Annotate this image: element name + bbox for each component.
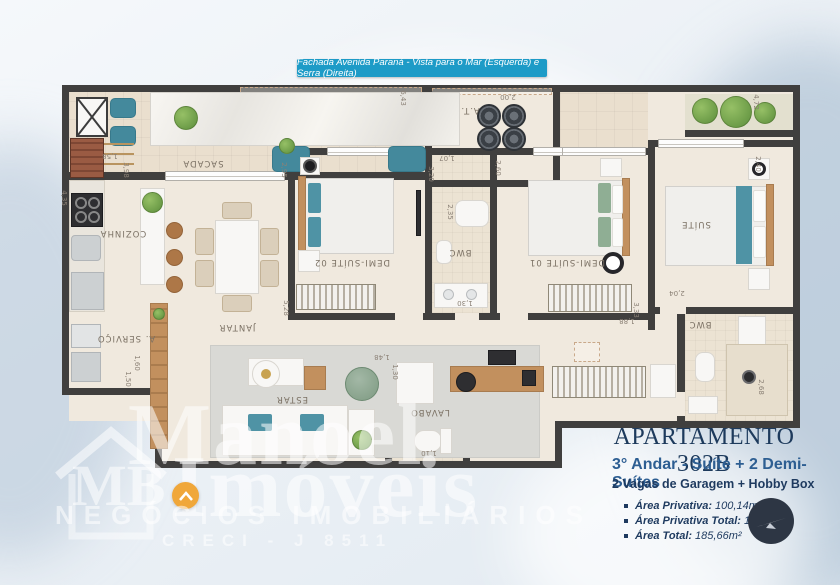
pillow — [308, 183, 321, 213]
room-label-demi-suite-02: DEMI-SUÍTE 02 — [314, 257, 390, 267]
dimension-label: 4,72 — [752, 94, 760, 110]
door-opening — [395, 313, 423, 320]
door-opening — [500, 313, 528, 320]
wall — [62, 85, 800, 92]
side-cabinet — [304, 366, 326, 390]
feature-label: Área Total: — [635, 530, 692, 542]
sofa-pillow — [248, 414, 272, 431]
facade-banner-text: Fachada Avenida Paraná - Vista para o Ma… — [297, 57, 547, 79]
dining-chair — [195, 228, 214, 255]
plant — [720, 96, 752, 128]
room-label-jantar: JANTAR — [219, 322, 256, 332]
decor — [303, 159, 317, 173]
feature-label: Área Privativa Total: — [635, 515, 741, 527]
dining-table — [215, 220, 259, 294]
fridge — [71, 272, 104, 310]
washer — [71, 352, 101, 382]
wall — [155, 461, 562, 468]
wall — [288, 148, 295, 320]
dimension-label: 1,30 — [457, 299, 473, 307]
pillow — [598, 183, 611, 213]
facade-banner: Fachada Avenida Paraná - Vista para o Ma… — [297, 59, 547, 77]
bed-runner — [736, 186, 752, 264]
grill — [70, 138, 104, 178]
plant — [279, 138, 295, 154]
door-opening — [677, 392, 685, 416]
bath-vanity — [688, 396, 718, 414]
room-label-at: A.T. — [460, 105, 479, 115]
room-label-bwc-suite: BWC — [689, 319, 712, 329]
door-opening — [455, 313, 479, 320]
dimension-label: 1,30 — [391, 364, 399, 380]
office-chair — [456, 372, 476, 392]
unit-subtitle-2: 2 Vagas de Garagem + Hobby Box — [612, 477, 815, 491]
cooktop — [71, 193, 103, 227]
bullet-icon — [624, 519, 628, 523]
orange-roof-icon — [172, 482, 199, 509]
dimension-label: 2,60 — [494, 160, 502, 176]
pillow — [753, 190, 766, 222]
toilet — [695, 352, 715, 382]
dining-chair — [222, 295, 252, 312]
room-label-servico: A. SERVIÇO — [97, 333, 155, 343]
wardrobe — [548, 284, 632, 312]
dimension-label: 6,43 — [399, 90, 407, 106]
plant — [692, 98, 718, 124]
balcony-right-floor — [560, 92, 648, 148]
dimension-label: 1,50 — [124, 371, 132, 387]
shower-bench — [738, 316, 766, 346]
skewer — [104, 143, 134, 145]
room-label-cozinha: COZINHA — [100, 228, 147, 238]
nightstand — [748, 268, 770, 290]
dimension-label: 1,60 — [133, 355, 141, 371]
dimension-label: 3,98 — [122, 162, 130, 178]
decor-tray — [261, 369, 271, 379]
feature-value: 185,66m² — [695, 530, 741, 542]
dimension-label: 1,88 — [619, 317, 635, 325]
dimension-label: 1,10 — [421, 449, 437, 457]
wall — [62, 388, 162, 395]
dimension-label: 2,95 — [280, 162, 288, 178]
stool — [166, 249, 183, 266]
closet-rack — [552, 366, 646, 398]
watermark-creci: CRECI - J 8511 — [162, 531, 393, 551]
door-swing — [574, 342, 600, 362]
pillow — [612, 218, 623, 247]
dimension-label: 1,07 — [439, 154, 455, 162]
dining-chair — [222, 202, 252, 219]
dimension-label: 2,40 — [754, 156, 762, 172]
wall-tv — [416, 190, 421, 236]
round-rug — [602, 252, 624, 274]
lavabo-vanity — [396, 362, 434, 404]
room-label-estar: ESTAR — [276, 394, 308, 404]
dimension-label: 2,00 — [500, 93, 516, 101]
dimension-label: 2,35 — [446, 204, 454, 220]
dining-chair — [260, 260, 279, 287]
elevator-shaft — [76, 97, 108, 137]
wall — [490, 155, 497, 320]
wall-planter — [685, 130, 793, 137]
wall — [648, 147, 655, 330]
wall-at — [553, 92, 560, 187]
ac-condenser — [477, 104, 501, 128]
sliding-door — [165, 171, 285, 181]
dining-chair — [195, 260, 214, 287]
mb-initials: MB — [72, 452, 165, 519]
wall — [555, 421, 562, 468]
kitchen-sink — [71, 235, 101, 261]
wall — [793, 85, 800, 428]
window — [562, 147, 646, 156]
room-label-bwc: BWC — [449, 247, 472, 257]
armchair — [345, 367, 379, 401]
burners-icon — [72, 194, 102, 226]
dimension-label: 2,04 — [669, 289, 685, 297]
window — [658, 139, 744, 148]
stool — [166, 276, 183, 293]
closet-cabinet — [650, 364, 676, 398]
stool — [166, 222, 183, 239]
feature-label: Área Privativa: — [635, 500, 712, 512]
toilet-tank — [440, 428, 452, 454]
pillow — [612, 185, 623, 214]
wardrobe — [296, 284, 376, 310]
door-opening — [660, 307, 686, 314]
dimension-label: 3,33 — [632, 302, 640, 318]
window — [327, 147, 391, 156]
floorplan-marketing-page: Fachada Avenida Paraná - Vista para o Ma… — [0, 0, 840, 585]
room-label-lavabo: LAVABO — [410, 407, 450, 417]
room-label-suite: SUÍTE — [681, 219, 711, 229]
bullet-icon — [624, 534, 628, 538]
headboard — [766, 184, 774, 266]
dimension-label: 1,48 — [374, 353, 390, 361]
headboard — [622, 178, 630, 256]
dimension-label: 2,68 — [757, 379, 765, 395]
pillow — [308, 217, 321, 247]
sofa — [222, 405, 348, 456]
sofa-pillow — [300, 414, 324, 431]
shower-drain — [742, 370, 756, 384]
printer — [522, 370, 536, 386]
nightstand — [600, 158, 622, 177]
wall — [425, 187, 432, 320]
north-arrow-icon — [748, 498, 794, 544]
pillow — [598, 217, 611, 247]
elevator-x-icon — [78, 99, 106, 135]
dimension-label: 4,35 — [60, 190, 68, 206]
plant — [142, 192, 163, 213]
headboard — [298, 176, 306, 254]
balcony-chair — [110, 98, 136, 118]
dimension-label: 1,58 — [102, 152, 118, 160]
dimension-label: 5,28 — [282, 300, 290, 316]
plant — [153, 308, 165, 320]
ac-condenser — [477, 127, 501, 151]
balcony-chair — [388, 146, 426, 172]
sink — [443, 289, 454, 300]
pillow — [753, 226, 766, 258]
wall — [62, 85, 69, 395]
plant — [174, 106, 198, 130]
bullet-icon — [624, 504, 628, 508]
ac-condenser — [502, 104, 526, 128]
room-label-sacada: SACADA — [182, 158, 223, 168]
plant — [352, 430, 372, 450]
pantry-shelf — [150, 303, 168, 449]
dining-chair — [260, 228, 279, 255]
bathtub — [455, 200, 489, 227]
room-label-demi-suite-01: DEMI-SUÍTE 01 — [529, 257, 605, 267]
dimension-label: 3,20 — [427, 166, 435, 182]
ac-condenser — [502, 127, 526, 151]
monitor — [488, 350, 516, 365]
